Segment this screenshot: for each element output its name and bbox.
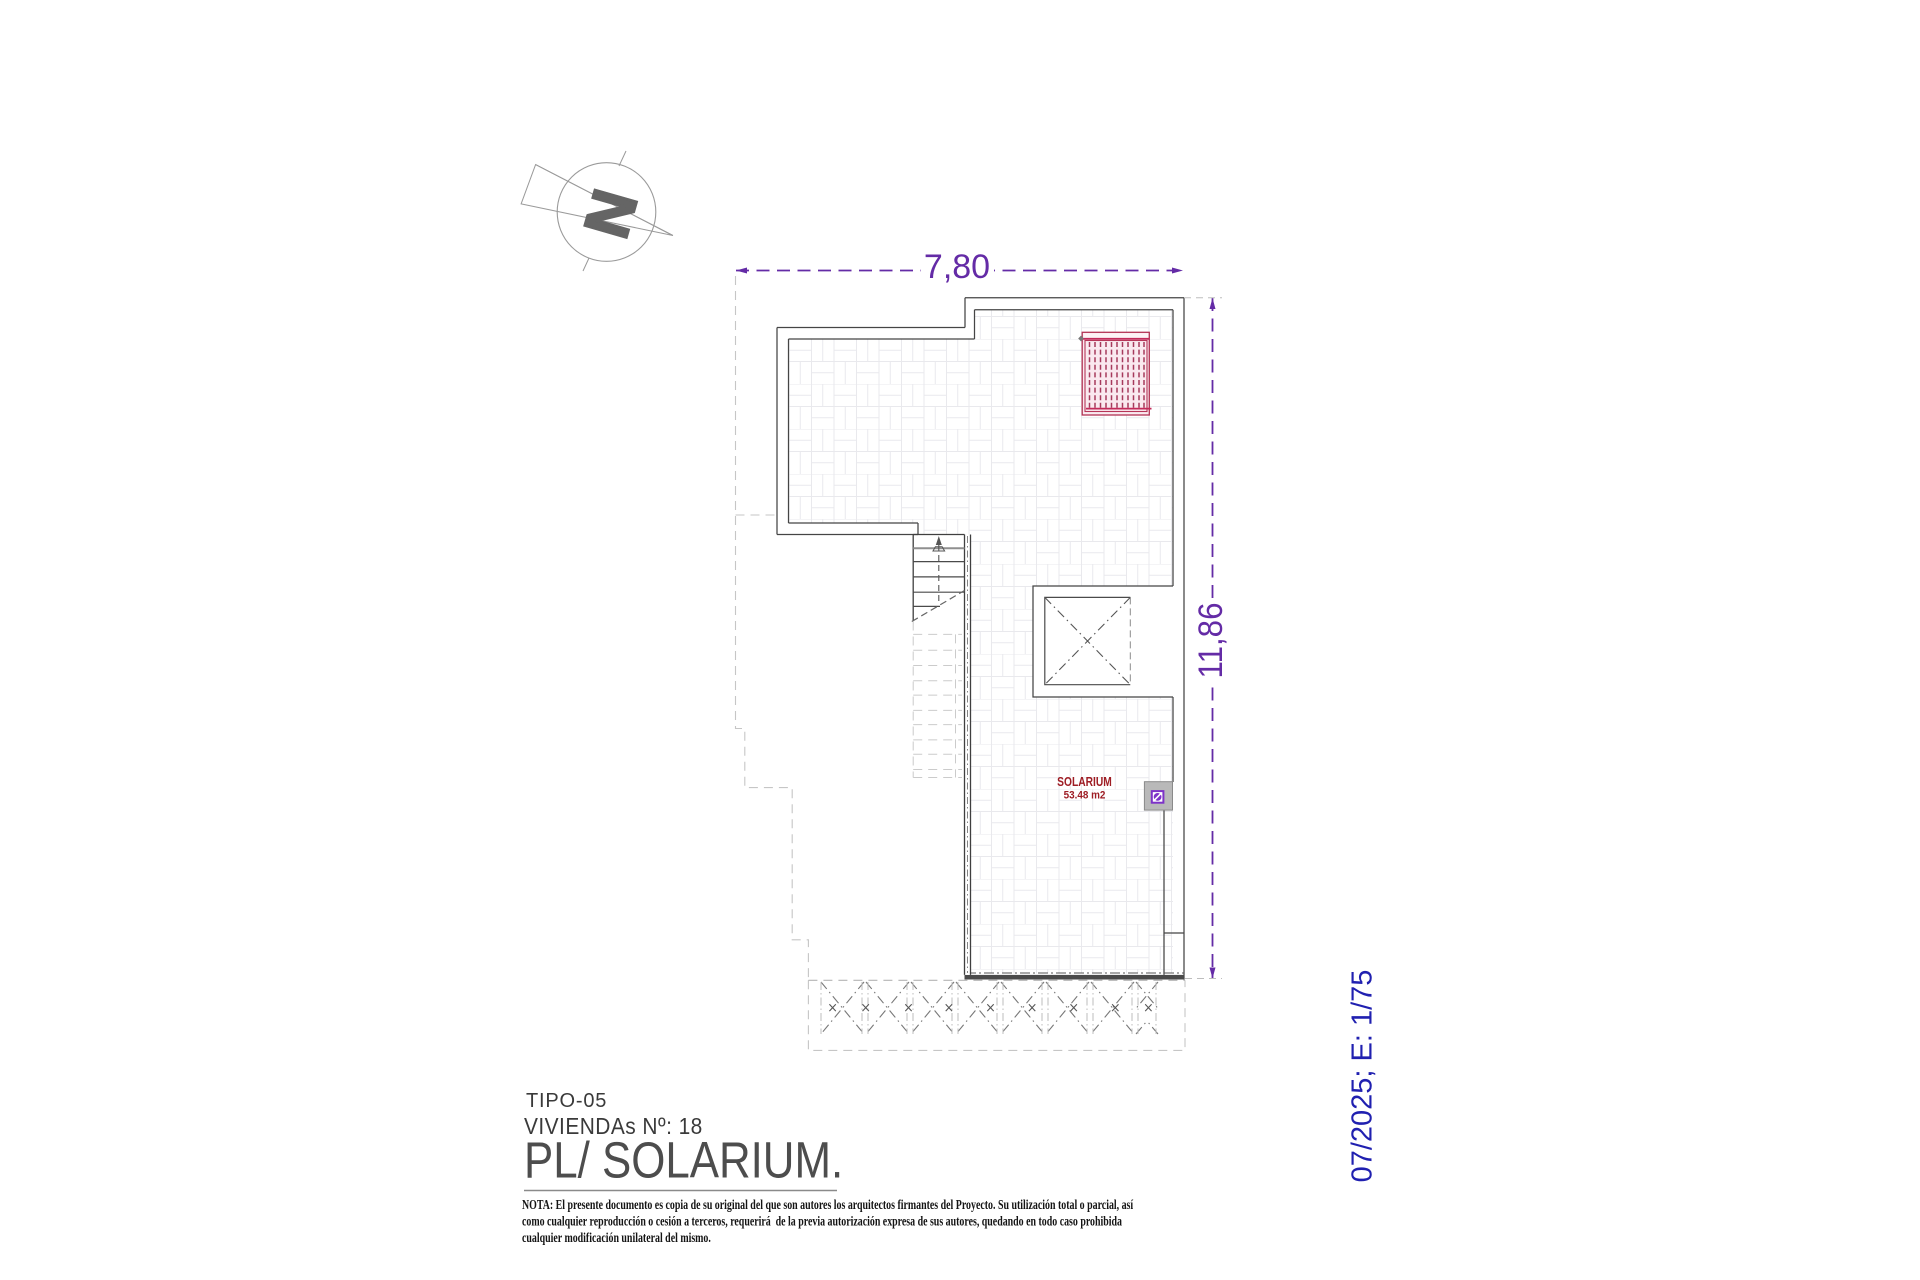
svg-text:7,80: 7,80 — [924, 248, 990, 286]
svg-text:SOLARIUM: SOLARIUM — [1057, 776, 1112, 789]
svg-text:TIPO-05: TIPO-05 — [526, 1090, 607, 1112]
svg-text:53.48 m2: 53.48 m2 — [1064, 790, 1106, 802]
svg-text:NOTA: El presente documento es: NOTA: El presente documento es copia de … — [522, 1196, 1134, 1212]
svg-text:como cualquier reproducción o: como cualquier reproducción o cesión a t… — [522, 1213, 1122, 1229]
svg-text:PL/ SOLARIUM.: PL/ SOLARIUM. — [524, 1132, 843, 1189]
svg-text:cualquier modificación unilate: cualquier modificación unilateral del mi… — [522, 1229, 711, 1245]
svg-text:N: N — [570, 182, 650, 245]
svg-text:11,86: 11,86 — [1192, 603, 1230, 679]
svg-text:07/2025; E: 1/75: 07/2025; E: 1/75 — [1347, 970, 1379, 1183]
